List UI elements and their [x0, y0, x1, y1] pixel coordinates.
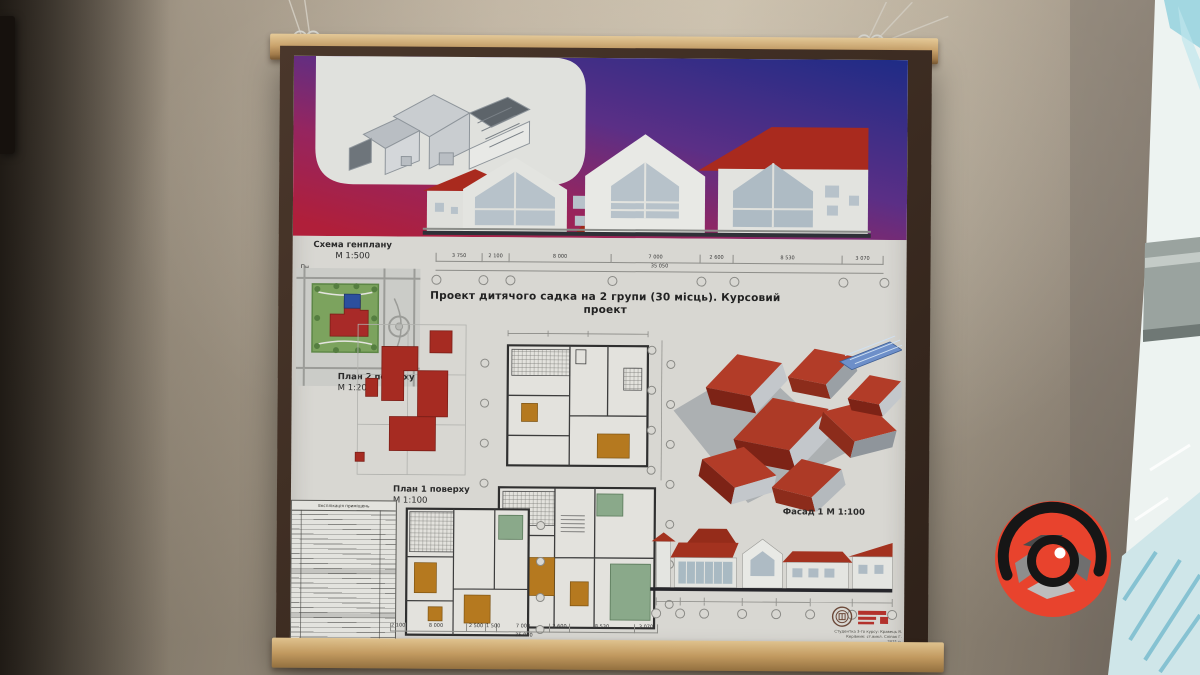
photo-scene: Схема генплану М 1:500 Пн 3 750 2 100 8 … — [0, 0, 1200, 675]
poster-assembly: Схема генплану М 1:500 Пн 3 750 2 100 8 … — [256, 16, 961, 673]
floor-plan-2 — [351, 318, 474, 484]
genplan-label: Схема генплану М 1:500 — [297, 240, 409, 262]
wooden-rail-bottom — [272, 638, 944, 673]
axis-circles-top — [431, 273, 889, 290]
genplan-title: Схема генплану — [313, 240, 392, 251]
poster-paper: Схема генплану М 1:500 Пн 3 750 2 100 8 … — [290, 56, 908, 652]
solar-panel — [840, 336, 902, 370]
legend-table: Експлікація приміщень — [290, 500, 397, 643]
stamp-emblem-icon — [830, 606, 902, 629]
dark-edge-object — [0, 16, 15, 154]
genplan-scale: М 1:500 — [335, 251, 370, 261]
stamp-logotype — [858, 611, 888, 625]
site-building-blue — [344, 294, 360, 308]
axonometric-view — [643, 300, 902, 512]
facade-buildings — [650, 528, 892, 592]
wall-shadow-left — [0, 0, 170, 675]
plan2-red-walls — [355, 330, 452, 462]
render-artwork — [293, 56, 908, 240]
dimension-chain-top: 3 750 2 100 8 000 7 000 2 600 8 530 3 07… — [436, 253, 884, 274]
eye-logo-icon — [992, 498, 1114, 620]
